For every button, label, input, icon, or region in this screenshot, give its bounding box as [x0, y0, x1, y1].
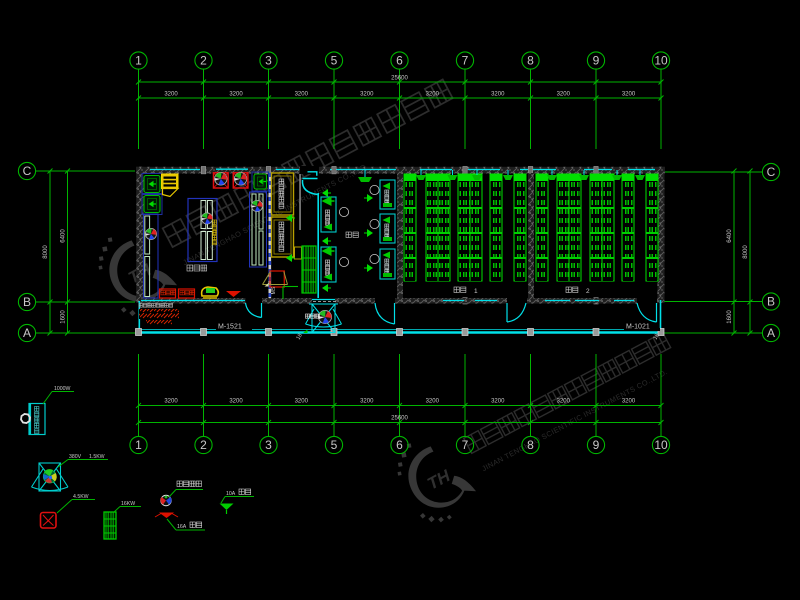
svg-text:6400: 6400	[727, 229, 733, 243]
svg-text:7: 7	[462, 54, 469, 68]
svg-text:9: 9	[593, 54, 600, 68]
svg-text:2: 2	[586, 288, 590, 295]
svg-text:25600: 25600	[391, 416, 408, 422]
svg-text:25600: 25600	[391, 76, 408, 82]
svg-text:3: 3	[265, 438, 272, 452]
svg-text:9: 9	[593, 438, 600, 452]
svg-text:3200: 3200	[164, 399, 178, 405]
svg-text:A: A	[23, 326, 31, 340]
svg-text:M-1521: M-1521	[218, 324, 242, 331]
svg-text:3200: 3200	[491, 399, 505, 405]
svg-text:10: 10	[654, 438, 668, 452]
svg-text:3200: 3200	[426, 399, 440, 405]
svg-text:3200: 3200	[622, 399, 636, 405]
svg-text:3200: 3200	[360, 92, 374, 98]
svg-text:C: C	[767, 165, 776, 179]
svg-text:3200: 3200	[295, 399, 309, 405]
svg-text:3200: 3200	[229, 92, 243, 98]
svg-text:1: 1	[474, 288, 478, 295]
svg-text:7: 7	[462, 438, 469, 452]
svg-text:6400: 6400	[61, 229, 67, 243]
svg-text:3200: 3200	[164, 92, 178, 98]
svg-text:8000: 8000	[743, 245, 749, 259]
svg-text:3200: 3200	[426, 92, 440, 98]
svg-text:6: 6	[396, 54, 403, 68]
svg-text:2: 2	[200, 438, 207, 452]
svg-text:1: 1	[135, 438, 142, 452]
svg-text:1600: 1600	[61, 310, 67, 324]
svg-text:10: 10	[654, 54, 668, 68]
svg-text:1600: 1600	[727, 310, 733, 324]
svg-text:3200: 3200	[557, 92, 571, 98]
svg-text:3200: 3200	[295, 92, 309, 98]
svg-text:MS: MS	[271, 286, 277, 294]
svg-text:B: B	[23, 295, 31, 309]
svg-text:8000: 8000	[43, 245, 49, 259]
svg-text:8: 8	[527, 438, 534, 452]
svg-text:3200: 3200	[557, 399, 571, 405]
svg-text:3200: 3200	[229, 399, 243, 405]
svg-text:1: 1	[135, 54, 142, 68]
svg-text:3: 3	[265, 54, 272, 68]
svg-text:3200: 3200	[491, 92, 505, 98]
svg-text:8: 8	[527, 54, 534, 68]
svg-text:5: 5	[331, 438, 338, 452]
svg-text:3200: 3200	[360, 399, 374, 405]
svg-text:6: 6	[396, 438, 403, 452]
svg-text:M-1021: M-1021	[626, 324, 650, 331]
svg-text:3200: 3200	[622, 92, 636, 98]
svg-text:16A: 16A	[177, 524, 187, 530]
svg-text:C: C	[23, 164, 32, 178]
svg-text:B: B	[767, 295, 775, 309]
svg-text:2: 2	[200, 54, 207, 68]
svg-text:A: A	[767, 326, 775, 340]
svg-text:5: 5	[331, 54, 338, 68]
